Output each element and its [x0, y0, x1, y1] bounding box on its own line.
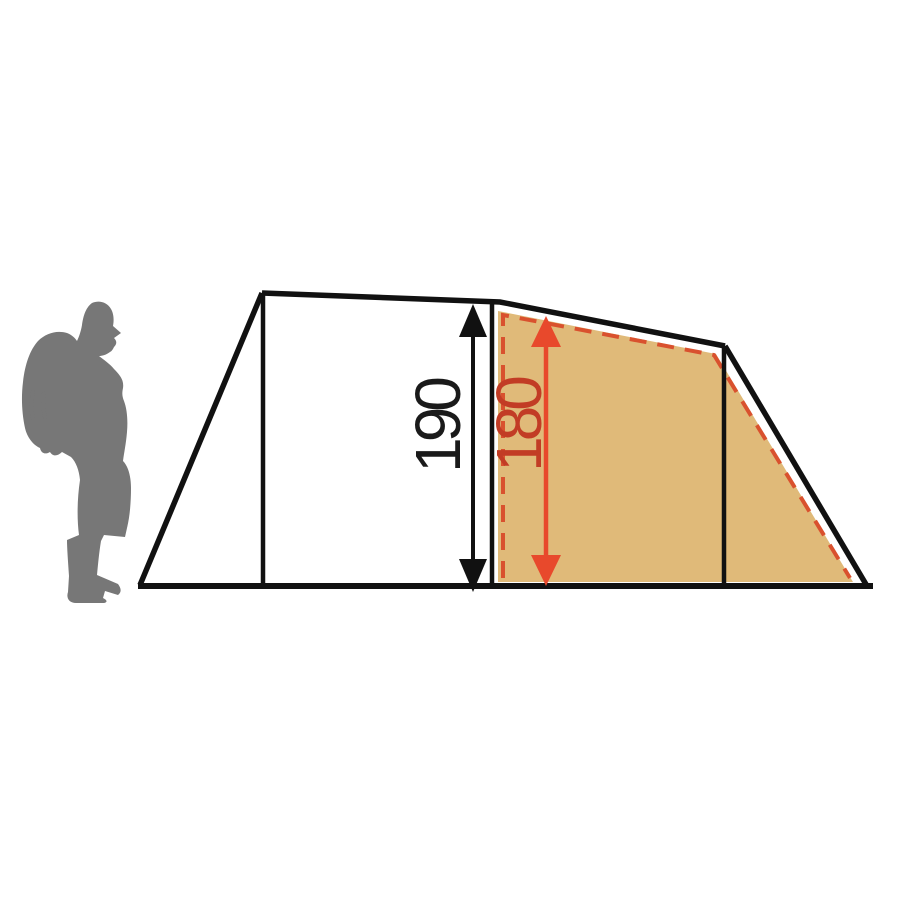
diagram-svg: 190 180 — [0, 0, 900, 900]
backpack-strap-detail — [43, 393, 45, 417]
inner-height-label: 180 — [483, 377, 555, 472]
hiker-body-shape — [22, 302, 131, 603]
tent-left-slope — [140, 293, 262, 585]
hiker-silhouette-icon — [22, 302, 131, 603]
outer-height-label: 190 — [402, 378, 474, 473]
tent-dimension-diagram: 190 180 — [0, 0, 900, 900]
backpack-strap-detail — [32, 392, 34, 418]
arrow-up-icon — [459, 304, 487, 337]
